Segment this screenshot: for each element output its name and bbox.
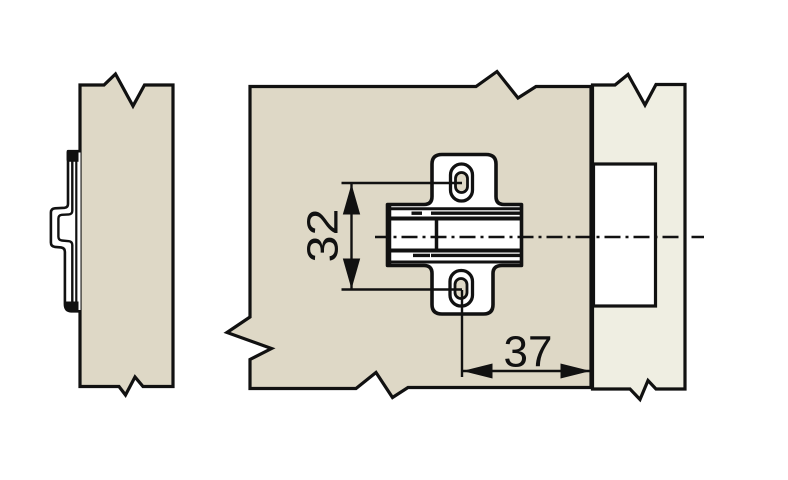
svg-text:37: 37 (504, 328, 553, 377)
svg-text:32: 32 (299, 209, 348, 263)
